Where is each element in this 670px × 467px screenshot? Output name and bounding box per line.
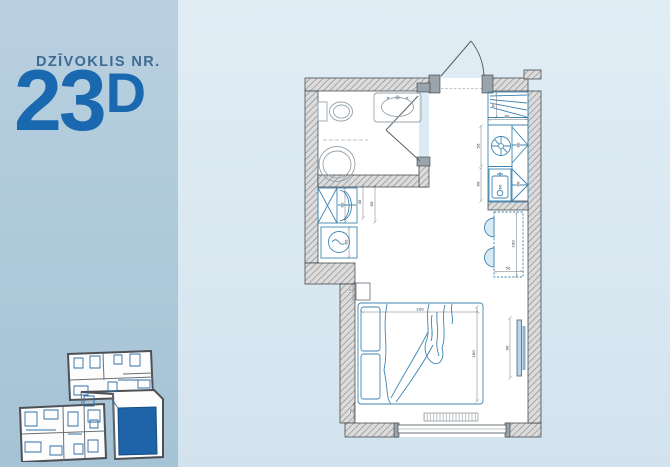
dimension-label-closet-gap: 45 <box>357 199 362 204</box>
headboard-shelf <box>356 283 370 300</box>
dimension-label-wardrobe-width: 60 <box>339 202 344 207</box>
dimension-label-kitchen-run-lower: 60 <box>475 181 480 186</box>
dimension-label-washer-width: 60 <box>343 239 348 244</box>
dimension-label-bed-width: 200 <box>416 307 424 312</box>
dimension-label-tv-height: 90 <box>505 345 510 350</box>
dimension-label-cabinet-upper: 60 <box>516 142 521 147</box>
dimension-label-bed-foot-gap: 50 <box>349 408 354 413</box>
dimension-label-table-width: 50 <box>506 265 511 270</box>
apartment-floor-plan: 200160901050604560606060506060606010050 <box>0 0 670 467</box>
tv <box>517 320 526 376</box>
window <box>398 425 506 433</box>
radiator <box>424 413 478 421</box>
dimension-label-fridge-depth: 60 <box>491 102 496 107</box>
apartment-brochure-page: DZĪVOKLIS NR. 23D <box>0 0 670 467</box>
dimension-label-kitchen-width: 60 <box>505 113 510 118</box>
dimension-label-bed-depth: 160 <box>471 350 476 358</box>
dimension-label-cabinet-lower: 60 <box>516 181 521 186</box>
dimension-label-table-length: 100 <box>511 240 516 248</box>
dimension-label-sink-width: 60 <box>498 184 503 189</box>
dimension-label-kitchen-run-upper: 50 <box>475 143 480 148</box>
dimension-label-headboard-shelf: 10 <box>348 288 353 293</box>
dimension-label-closet-clear: 60 <box>369 201 374 206</box>
